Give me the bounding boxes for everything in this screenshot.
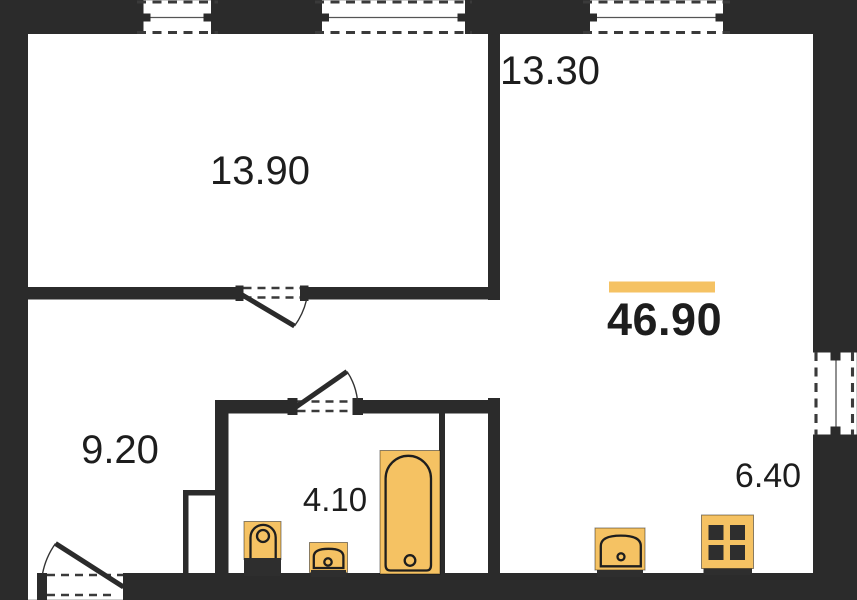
total-area-underline <box>609 282 715 293</box>
toilet-icon <box>244 522 281 577</box>
room-area-label-top-left: 13.90 <box>210 151 310 191</box>
room-area-label-bathroom: 4.10 <box>303 483 367 516</box>
washbasin-icon <box>310 543 348 578</box>
stove-icon <box>702 515 754 575</box>
room-area-label-top-right: 13.30 <box>500 51 600 91</box>
floor-plan-svg <box>0 0 857 600</box>
window-top-3-icon <box>583 2 730 33</box>
bathtub-icon <box>380 451 440 575</box>
floor-plan: 13.90 13.30 9.20 4.10 6.40 46.90 <box>0 0 857 600</box>
ventilation-shaft <box>183 490 215 574</box>
window-right-icon <box>816 352 853 435</box>
window-top-1-icon <box>137 2 218 33</box>
door-entrance-icon <box>43 544 124 596</box>
window-top-2-icon <box>315 2 472 33</box>
room-area-label-kitchen: 6.40 <box>735 459 801 493</box>
kitchen-sink-icon <box>595 528 645 577</box>
door-bathroom-icon <box>296 372 358 412</box>
door-room-icon <box>242 288 307 326</box>
total-area-label: 46.90 <box>607 297 722 342</box>
room-area-label-hallway: 9.20 <box>81 430 159 470</box>
